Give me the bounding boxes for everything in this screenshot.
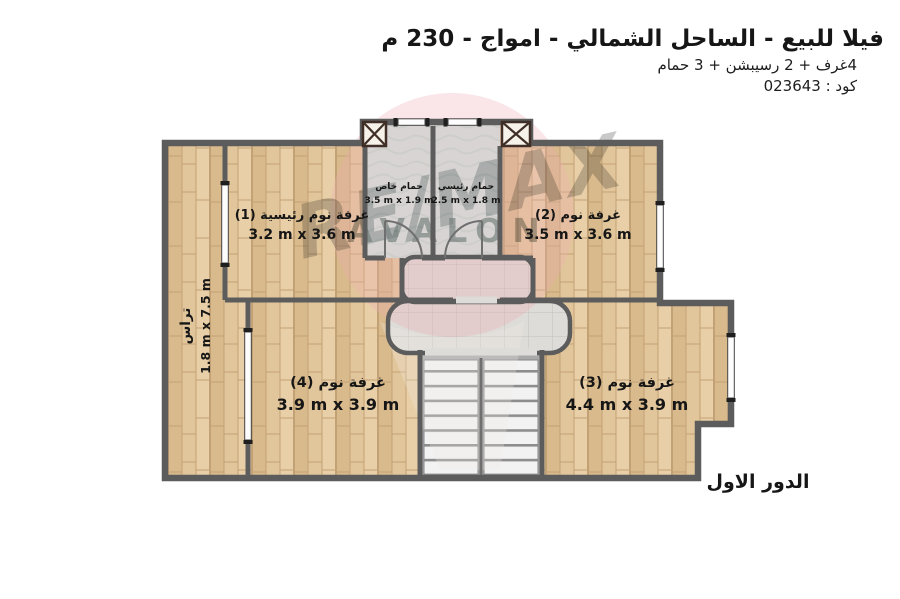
room-dims: 3.5 m x 1.9 m: [365, 196, 434, 206]
room-name: تراس: [178, 308, 194, 345]
room-dims: 2.5 m x 1.8 m: [432, 196, 501, 206]
shaft-symbol-right: [502, 122, 530, 146]
room-name: غرفة نوم (4): [290, 375, 386, 391]
room-name: حمام رئيسي: [438, 182, 494, 192]
floor-plan-svg: RE/MAX AVALON: [0, 0, 900, 599]
window: [398, 119, 425, 126]
room-name: غرفة نوم رئيسية (1): [235, 208, 370, 223]
window: [222, 185, 229, 263]
window: [448, 119, 477, 126]
window: [245, 332, 252, 440]
room-dims: 4.4 m x 3.9 m: [566, 395, 689, 414]
room-name: حمام خاص: [375, 182, 423, 192]
window: [728, 337, 735, 398]
floor-plan-page: فيلا للبيع - الساحل الشمالي - امواج - 23…: [0, 0, 900, 599]
shaft-symbol-left: [363, 122, 386, 146]
room-dims: 3.2 m x 3.6 m: [248, 227, 355, 243]
room-name: غرفة نوم (3): [579, 375, 675, 391]
window: [657, 205, 664, 268]
room-name: غرفة نوم (2): [535, 208, 621, 223]
room-dims: 1.8 m x 7.5 m: [198, 278, 213, 374]
room-dims: 3.9 m x 3.9 m: [277, 395, 400, 414]
room-dims: 3.5 m x 3.6 m: [524, 227, 631, 243]
floor-label: الدور الاول: [700, 471, 816, 493]
